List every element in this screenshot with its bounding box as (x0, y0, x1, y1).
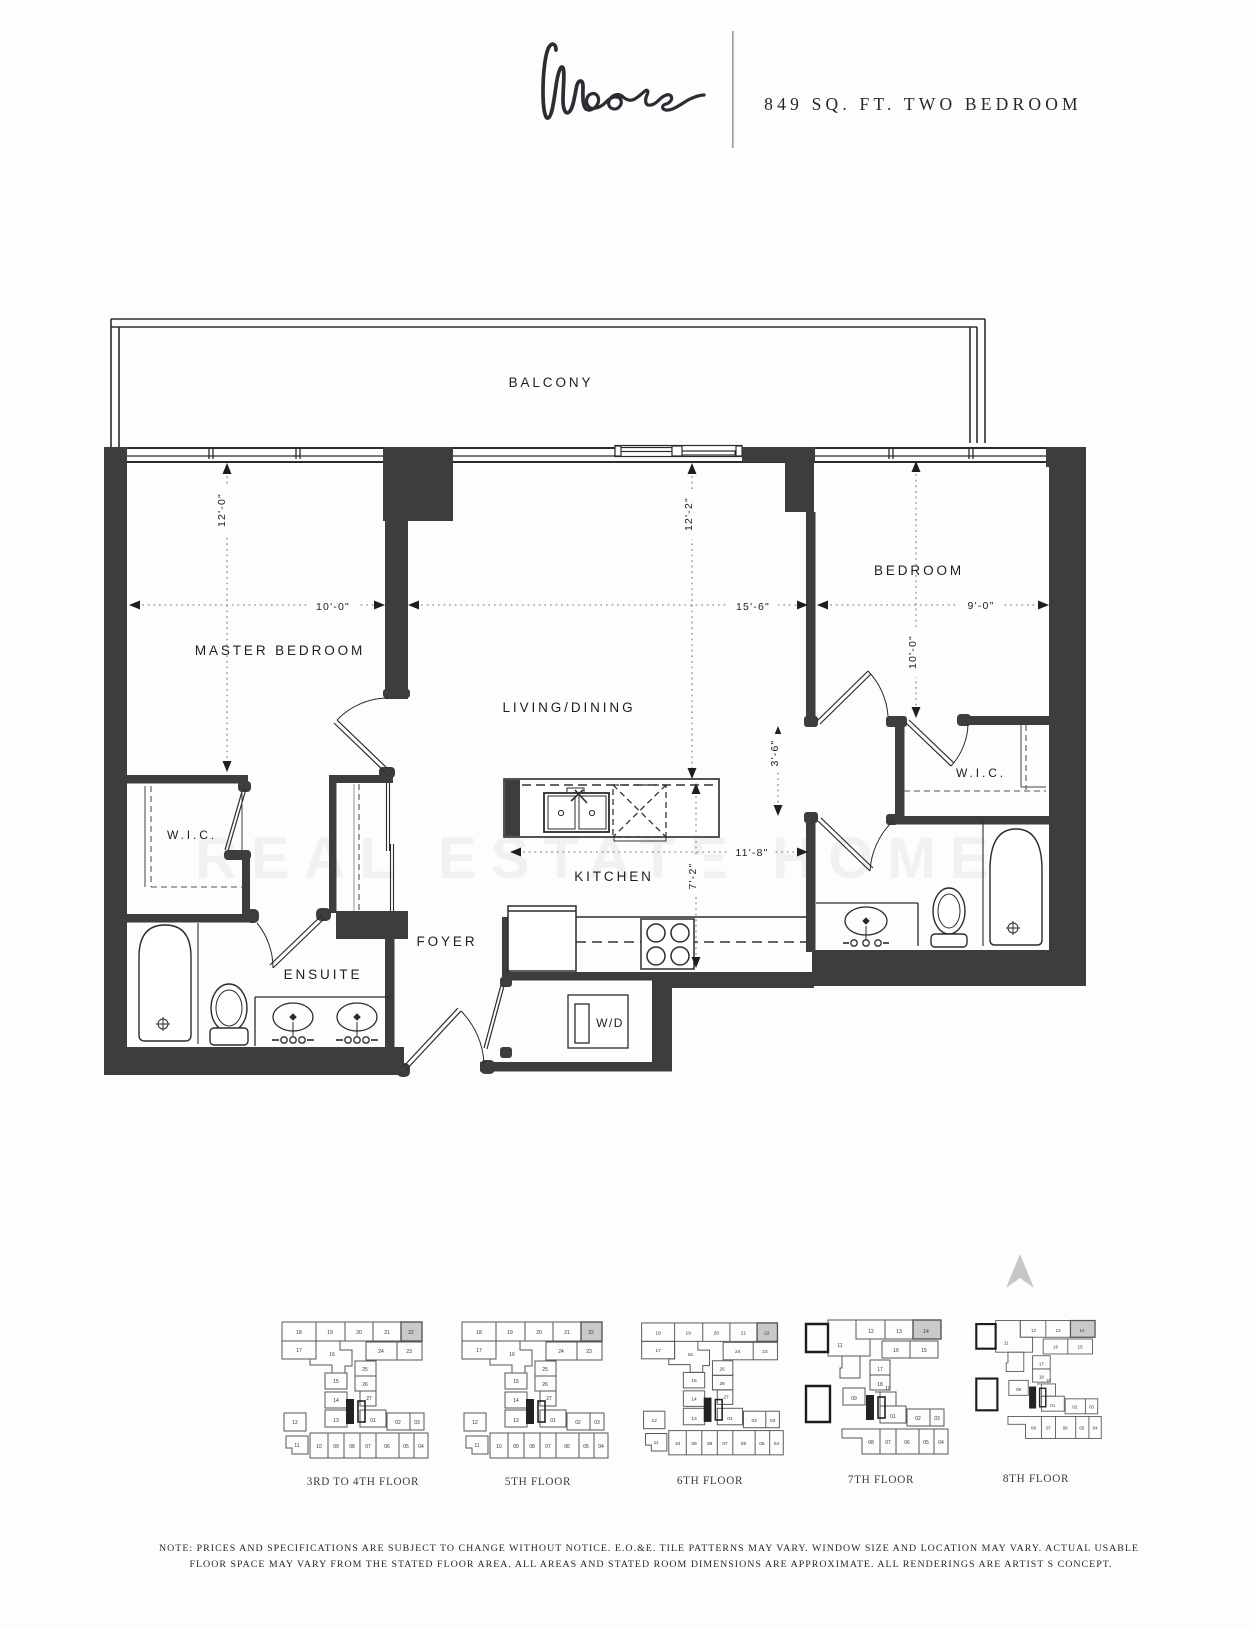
svg-text:6TH FLOOR: 6TH FLOOR (677, 1475, 743, 1487)
svg-text:7TH FLOOR: 7TH FLOOR (848, 1474, 914, 1486)
svg-text:15'-6": 15'-6" (736, 601, 770, 613)
svg-text:12'-0": 12'-0" (216, 493, 228, 527)
svg-text:5TH FLOOR: 5TH FLOOR (505, 1476, 571, 1488)
svg-text:FOYER: FOYER (416, 934, 477, 949)
svg-text:8TH FLOOR: 8TH FLOOR (1003, 1473, 1069, 1485)
svg-text:W.I.C.: W.I.C. (956, 766, 1006, 780)
svg-text:BEDROOM: BEDROOM (874, 563, 964, 578)
svg-text:11'-8": 11'-8" (735, 847, 768, 859)
svg-text:FLOOR SPACE MAY VARY FROM THE: FLOOR SPACE MAY VARY FROM THE STATED FLO… (189, 1559, 1112, 1570)
svg-text:10'-0": 10'-0" (316, 601, 350, 613)
svg-text:9'-0": 9'-0" (968, 600, 995, 612)
svg-text:7'-2": 7'-2" (687, 863, 699, 890)
svg-text:3RD TO 4TH FLOOR: 3RD TO 4TH FLOOR (307, 1476, 419, 1488)
svg-text:MASTER BEDROOM: MASTER BEDROOM (195, 643, 365, 658)
svg-text:3'-6": 3'-6" (769, 740, 781, 767)
svg-text:849 SQ. FT. TWO BEDROOM: 849 SQ. FT. TWO BEDROOM (764, 94, 1082, 114)
svg-text:W.I.C.: W.I.C. (167, 828, 217, 842)
svg-text:10'-0": 10'-0" (907, 635, 919, 669)
svg-text:KITCHEN: KITCHEN (574, 869, 654, 884)
svg-text:W/D: W/D (596, 1016, 624, 1030)
svg-text:12'-2": 12'-2" (683, 497, 695, 531)
svg-text:NOTE: PRICES AND SPECIFICATION: NOTE: PRICES AND SPECIFICATIONS ARE SUBJ… (159, 1543, 1139, 1554)
svg-text:LIVING/DINING: LIVING/DINING (503, 700, 636, 715)
svg-text:ENSUITE: ENSUITE (284, 967, 363, 982)
svg-text:BALCONY: BALCONY (509, 375, 594, 390)
